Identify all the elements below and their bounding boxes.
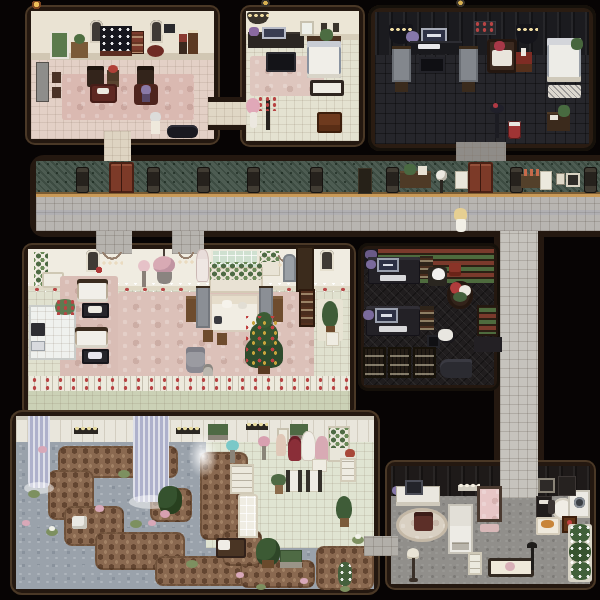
lily-pad-icon — [340, 586, 350, 592]
coat-rack-roses — [257, 96, 278, 111]
white-shelf-unit — [230, 464, 254, 494]
floor-green-band — [28, 391, 350, 412]
wall-planter — [208, 424, 228, 440]
tea-set — [88, 306, 102, 313]
desk-chair — [414, 512, 433, 531]
lily-pad-icon — [28, 490, 40, 498]
bench-flower-icon — [505, 562, 515, 571]
pedestal-lamp-stand — [142, 271, 146, 287]
garden-kitchen-passage — [364, 536, 398, 556]
curtain-table — [395, 82, 408, 92]
rose-icon — [493, 103, 498, 108]
iron-chandelier-icon — [176, 420, 200, 446]
wall-poster — [455, 171, 468, 189]
towel-bench — [286, 470, 302, 492]
iron-chandelier-icon — [516, 24, 538, 44]
white-dress-mannequin — [301, 431, 316, 461]
bar-plants — [210, 262, 262, 280]
plant-cart-greens — [329, 428, 349, 448]
sofa-blanket — [492, 50, 512, 66]
pink-water-flower — [148, 520, 156, 526]
pink-water-flower — [22, 520, 30, 526]
book-stack-shelf — [420, 306, 434, 330]
gray-cabinet — [36, 62, 49, 102]
topiary-pot — [340, 518, 349, 527]
teapot-icon — [238, 302, 247, 309]
stove-icon — [31, 323, 45, 336]
wall-sconce-icon — [197, 167, 210, 193]
round-red-table — [147, 45, 164, 57]
flower-picture-icon — [538, 478, 555, 493]
red-books — [449, 263, 461, 276]
glass-cupboard — [558, 476, 576, 496]
side-table-plant — [71, 42, 88, 58]
potted-plant-icon — [74, 34, 85, 44]
bookcase — [388, 347, 411, 378]
treasure-chest — [317, 112, 342, 133]
flower-stand-pole — [230, 450, 235, 463]
black-bench — [167, 125, 198, 138]
book-icon — [550, 115, 558, 120]
framed-picture-icon — [300, 21, 314, 36]
rose-bush-blooms — [55, 299, 75, 315]
plant-pot — [275, 485, 283, 494]
ornate-wardrobe — [238, 494, 258, 538]
framed-picture-icon — [566, 173, 580, 187]
plant-terrarium — [50, 31, 69, 59]
tv-screen — [266, 52, 296, 72]
wall-sconce-icon — [310, 167, 323, 193]
bed-white — [307, 41, 341, 78]
wall-scroll — [540, 171, 552, 190]
wall-torch-icon — [456, 0, 465, 11]
bar-stool — [186, 296, 196, 322]
door-split — [480, 164, 481, 192]
lily-pad-icon — [186, 560, 198, 568]
bookcase — [413, 347, 436, 378]
planter-box — [280, 550, 302, 568]
gray-curtain-panel — [392, 46, 411, 82]
pink-tapestry — [477, 486, 502, 522]
player-blonde-girl-dress — [456, 219, 466, 232]
potted-plant-icon — [571, 38, 583, 50]
bedside-rug — [548, 85, 581, 98]
purple-item — [363, 310, 374, 320]
hall-living-connector — [96, 231, 132, 254]
wall-chandelier-icon — [177, 252, 195, 266]
bouquet-greens — [453, 292, 467, 302]
tree-pot — [258, 366, 270, 374]
washer-door-icon — [574, 497, 585, 508]
gray-curtain-panel — [459, 46, 478, 82]
hook-lamp-top — [527, 542, 537, 548]
pink-mat — [480, 524, 499, 532]
lily-pad-icon — [130, 520, 142, 528]
topiary-tree — [336, 496, 352, 520]
curtain-table — [462, 82, 475, 92]
cot-pillow — [218, 540, 230, 550]
wall-sconce-icon — [76, 167, 89, 193]
small-bookshelf — [299, 289, 315, 327]
topiary-tree — [322, 301, 338, 327]
vase-base — [250, 112, 257, 128]
tea-set — [97, 88, 109, 94]
towel-bench — [306, 470, 322, 492]
tea-set — [88, 352, 102, 359]
lamp-pole — [412, 558, 415, 580]
dark-bench — [440, 359, 472, 378]
white-rock — [72, 516, 87, 529]
pink-water-flower — [300, 578, 308, 584]
hook-lamp-pole — [531, 545, 534, 570]
bare-mannequin — [276, 434, 286, 456]
wall-torch-icon — [261, 0, 270, 12]
fridge-vent — [452, 542, 469, 550]
corridor-kitchen-entrance — [500, 460, 538, 498]
iron-chandelier-icon — [74, 420, 98, 446]
sink-icon — [31, 341, 45, 351]
tv-screen — [419, 57, 445, 73]
wall-chandelier-icon — [101, 252, 123, 267]
keyboard-icon — [380, 275, 406, 281]
game-viewport[interactable] — [0, 0, 600, 600]
parlor-carpet — [62, 74, 194, 120]
small-white-cabinet — [468, 552, 482, 575]
framed-picture-icon — [332, 22, 340, 33]
lamp-base — [409, 578, 418, 582]
lily-flower-icon — [355, 534, 361, 539]
bottle-icon — [521, 48, 526, 56]
lily-pad-icon — [256, 584, 266, 590]
study-corridor-door-floor — [474, 337, 502, 352]
arched-mirror — [283, 254, 296, 282]
desk-computer-icon — [262, 27, 286, 39]
grandfather-clock — [188, 30, 198, 54]
pink-water-flower — [38, 446, 47, 453]
computer-monitor-icon — [405, 480, 423, 495]
npc-purple-hair-body — [142, 94, 150, 102]
basket-pot — [157, 272, 172, 284]
computer-monitor-icon — [375, 308, 398, 323]
wall-torch-icon — [32, 1, 41, 11]
tall-etagere — [358, 168, 372, 194]
potted-plant-icon — [558, 105, 570, 117]
lily-pad-icon — [118, 470, 130, 478]
white-cat — [432, 268, 445, 280]
keyboard-icon — [379, 326, 407, 332]
flower-bouquet-icon — [108, 65, 118, 73]
potted-plant-icon — [404, 164, 416, 175]
wall-pillar — [296, 246, 314, 292]
bookcase — [363, 347, 386, 378]
door-split — [121, 164, 122, 192]
desk-papers — [418, 44, 440, 49]
lily-flower-icon — [49, 526, 55, 531]
bed-foot-bench — [310, 80, 344, 96]
kettle-icon — [214, 316, 222, 324]
wall-sconce-icon — [386, 167, 399, 193]
annex-bookshelf — [477, 305, 498, 336]
flower-stand-pole — [262, 446, 266, 460]
potted-plant-icon — [320, 29, 333, 41]
framed-picture-icon — [556, 173, 565, 185]
cake-icon — [222, 300, 232, 308]
npc-rose-hair-head — [494, 41, 505, 51]
parlor-window-icon — [320, 250, 334, 271]
rose-fence — [28, 376, 350, 391]
hallway-floor-streak — [36, 210, 600, 215]
wood-chair — [52, 72, 61, 83]
wood-chair — [52, 87, 61, 98]
dining-chair — [548, 500, 555, 514]
framed-picture-icon — [162, 22, 177, 35]
purple-item — [366, 260, 376, 269]
desk-flowers — [249, 27, 259, 36]
parlor-bedroom-passage-floor — [208, 102, 246, 125]
pink-flower-icon — [160, 510, 170, 518]
bread-icon — [541, 520, 554, 528]
wall-sconce-icon — [584, 167, 597, 193]
plant-pot — [262, 560, 274, 568]
white-sofa — [77, 279, 108, 302]
computer-monitor-icon — [377, 258, 399, 272]
flowering-shrub — [338, 562, 352, 586]
paper-pile — [438, 329, 453, 341]
trash-bin — [508, 121, 521, 139]
east-corridor-floor — [500, 231, 538, 477]
star-chalkboard — [100, 26, 132, 56]
pink-water-flower — [236, 572, 244, 578]
small-white-table — [326, 332, 339, 346]
bar-stool — [217, 333, 227, 345]
floor-lamp-icon — [179, 34, 187, 54]
gray-curtain-panel — [196, 286, 210, 328]
wall-sconce-icon — [247, 167, 260, 193]
dress-mannequin — [196, 249, 209, 282]
npc-maid-body — [151, 121, 160, 134]
white-dresser — [340, 458, 356, 482]
wall-flower-box — [474, 21, 496, 35]
red-dress-mannequin — [288, 436, 302, 461]
framed-picture-icon — [418, 166, 427, 175]
shrub-blooms — [568, 524, 592, 580]
red-bookshelf — [131, 31, 144, 54]
parlor-exit-floor — [104, 131, 131, 164]
pink-water-flower — [95, 505, 104, 512]
orb-lamp-stand — [440, 180, 443, 193]
wall-sconce-icon — [147, 167, 160, 193]
christmas-tree-ornaments — [246, 316, 282, 368]
bar-stool — [203, 330, 213, 342]
white-sofa — [75, 327, 108, 348]
